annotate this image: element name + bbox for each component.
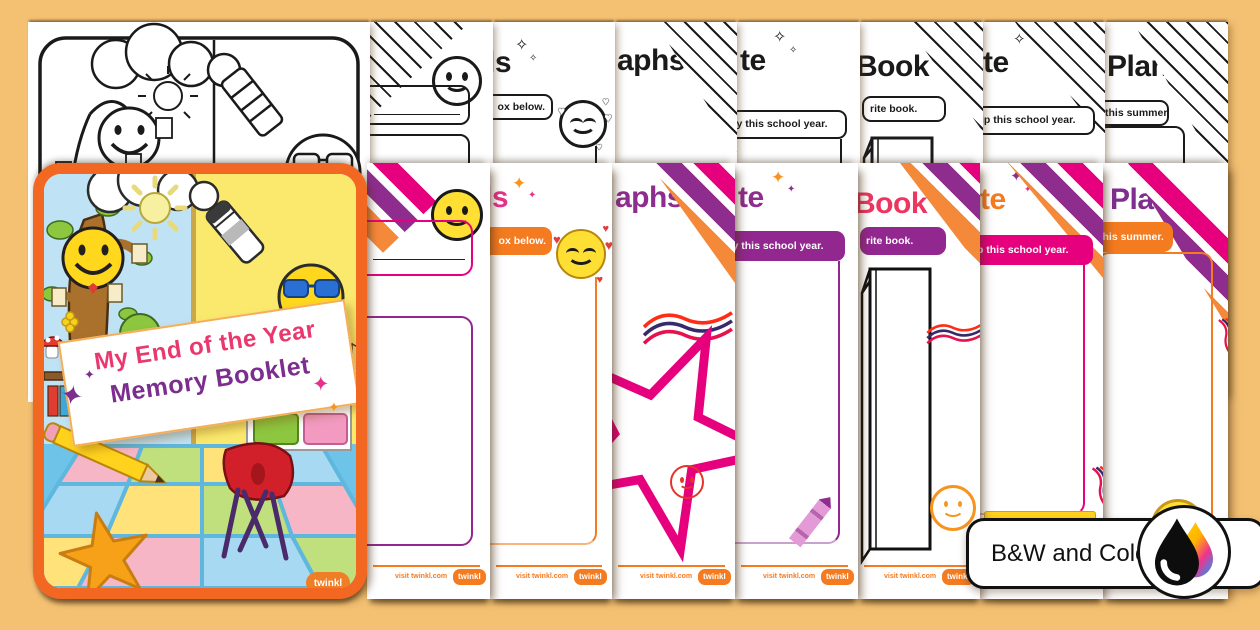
instruction-label: ox below. (493, 94, 553, 120)
footer-rule (864, 565, 970, 567)
color-smiley-page: visit twinkl.com twinkl (367, 163, 490, 599)
heart-icon: ♥ (553, 233, 561, 246)
visit-text: visit twinkl.com (763, 573, 815, 580)
badge-label: B&W and Color (969, 540, 1156, 568)
visit-text: visit twinkl.com (516, 573, 568, 580)
footer-rule (496, 565, 602, 567)
heart-icon: ♥ (596, 275, 603, 286)
twinkl-logo: twinkl (574, 569, 607, 585)
instruction-label: rite book. (862, 96, 946, 122)
writing-line (374, 114, 460, 115)
star-outline (612, 311, 735, 573)
drawing-box-edge (980, 265, 1085, 515)
page-title-fragment: ls (490, 181, 508, 215)
twinkl-logo: twinkl (698, 569, 731, 585)
heart-eyes-emoji: ♥ ♥ ♥ ♥ (556, 229, 606, 279)
heart-icon: ♥ (602, 97, 609, 108)
page-title-fragment: Book (858, 187, 927, 221)
instruction-label: ip this school year. (980, 235, 1093, 265)
lower-box (367, 316, 473, 546)
twinkl-logo: twinkl (306, 572, 350, 588)
heart-icon: ♥ (558, 105, 565, 117)
visit-text: visit twinkl.com (884, 573, 936, 580)
twinkl-logo: twinkl (821, 569, 854, 585)
name-box (370, 85, 470, 125)
instruction-label: ty this school year. (735, 231, 845, 261)
instruction-label: ip this school year. (983, 106, 1095, 135)
color-favorite-activity-page: te ✦ ✦ ty this school year. visit twinkl… (735, 163, 858, 599)
instruction-label: rite book. (860, 227, 946, 255)
sparkle-icon: ✧ (789, 46, 797, 56)
visit-text: visit twinkl.com (640, 573, 692, 580)
twinkl-logo: twinkl (453, 569, 486, 585)
resource-preview: ls ✧ ✧ ox below. ♥ ♥ ♥ ♥ aphs ✧ te ✧ ✧ t… (0, 0, 1260, 630)
heart-eyes-emoji: ♥ ♥ ♥ ♥ (559, 100, 607, 148)
instruction-label: ox below. (490, 227, 552, 255)
sparkle-icon: ✦ (787, 185, 795, 195)
footer-rule (741, 565, 848, 567)
page-title-fragment: te (740, 44, 766, 78)
ink-drop-icon (1140, 508, 1228, 596)
visit-text: visit twinkl.com (395, 573, 447, 580)
sparkle-icon: ✦ (328, 400, 340, 414)
heart-icon: ♥ (604, 111, 612, 124)
name-box (367, 220, 473, 276)
page-title-fragment: te (980, 183, 1006, 217)
footer-rule (618, 565, 725, 567)
corner-stripes (649, 163, 735, 283)
color-favorite-book-page: Book ✦ rite book. visit twinkl.com twink… (858, 163, 980, 599)
smiley-outline (670, 465, 704, 499)
ink-drop-badge (1137, 505, 1231, 599)
heart-icon: ♥ (605, 238, 612, 252)
instruction-label: ty this school year. (737, 110, 847, 139)
sparkle-icon: ✧ (773, 30, 786, 46)
sparkle-icon: ✦ (512, 175, 526, 192)
drawing-box-edge (490, 277, 597, 545)
page-title-fragment: Book (860, 50, 929, 84)
sparkle-icon: ✧ (529, 54, 537, 64)
heart-icon: ♥ (602, 224, 609, 235)
wavy-lines (926, 303, 980, 359)
page-title-fragment: ls (493, 46, 511, 80)
page-title-fragment: te (983, 46, 1009, 80)
instruction-label: this summer. (1105, 100, 1169, 126)
wavy-lines (1082, 461, 1103, 512)
color-cover-page: My End of the Year Memory Booklet ✦ ✦ ✦ … (33, 163, 367, 599)
corner-stripes (655, 22, 737, 152)
color-goals-page: ls ✦ ✦ ox below. ♥ ♥ ♥ ♥ visit twinkl.co… (490, 163, 612, 599)
color-autographs-page: aphs ✦ visit twinkl.com twinkl (612, 163, 735, 599)
sparkle-icon: ✦ (528, 191, 536, 201)
instruction-label: this summer. (1103, 222, 1173, 252)
sparkle-icon: ✦ (84, 368, 95, 381)
cover-art: My End of the Year Memory Booklet ✦ ✦ ✦ … (44, 174, 356, 588)
sparkle-icon: ✦ (771, 169, 785, 186)
writing-line (373, 259, 465, 260)
sparkle-icon: ✧ (1013, 32, 1026, 47)
page-title-fragment: te (738, 181, 764, 215)
drawing-box (1103, 252, 1213, 546)
sparkle-icon: ✦ (312, 374, 330, 395)
footer-rule (373, 565, 480, 567)
sparkle-icon: ✧ (515, 38, 528, 54)
